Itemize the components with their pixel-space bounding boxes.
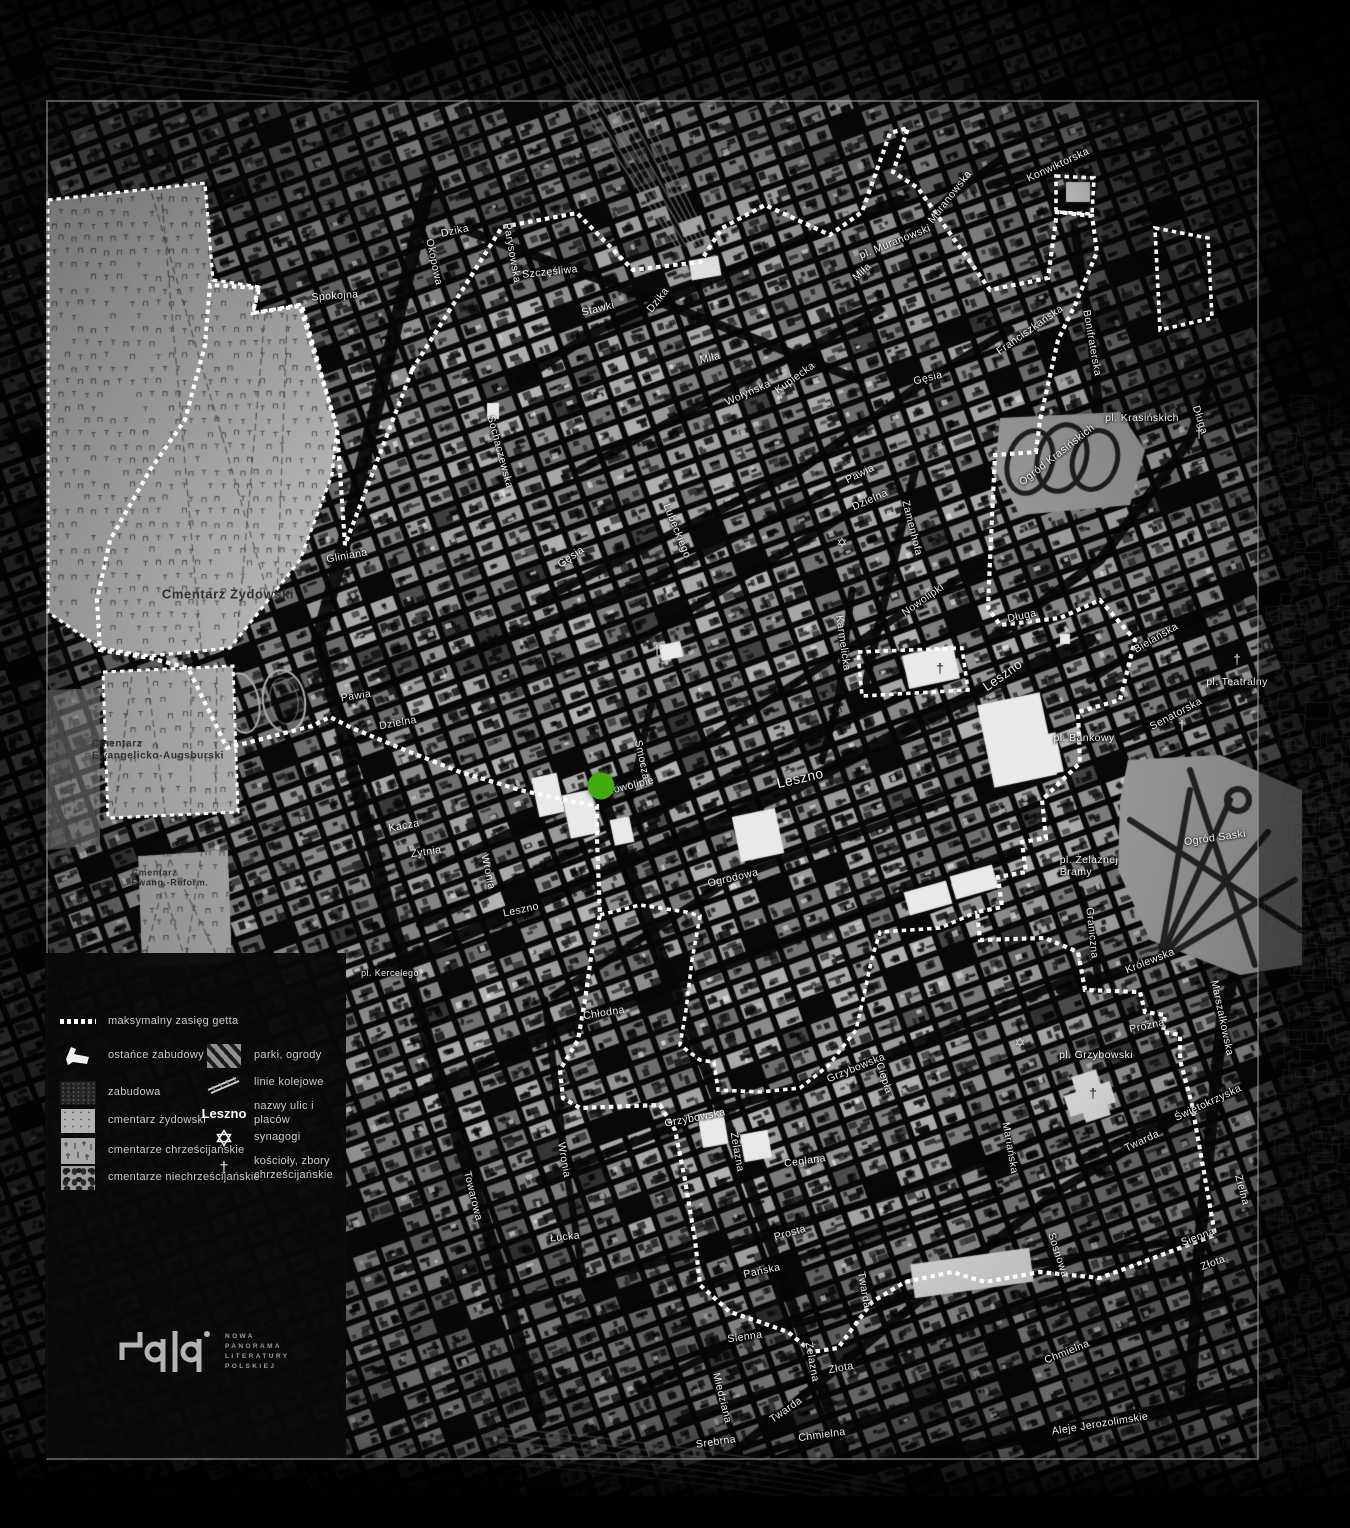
legend-item-parks: parki, ogrody: [205, 1044, 322, 1068]
legend-label: synagogi: [254, 1131, 300, 1145]
legend-panel: maksymalny zasięg gettaostańce zabudowyz…: [45, 953, 346, 1458]
logo-line: NOWA: [225, 1333, 289, 1341]
jewish-cemetery-icon: [59, 1109, 97, 1133]
synagogue-icon: [205, 1129, 243, 1147]
logo-line: LITERATURY: [225, 1353, 289, 1361]
publisher-logo-text: NOWA PANORAMA LITERATURY POLSKIEJ: [225, 1333, 289, 1372]
legend-item-building-remnants: ostańce zabudowy: [59, 1043, 204, 1069]
ghetto-boundary-icon: [59, 1019, 97, 1024]
legend-item-street-name-sample: Lesznonazwy ulic i placów: [205, 1100, 346, 1128]
legend-label: nazwy ulic i placów: [254, 1100, 346, 1128]
legend-item-synagogue: synagogi: [205, 1129, 300, 1147]
map-stage: DzikaOkopowaSpokojnaParysowskaSzczęśliwa…: [0, 0, 1350, 1528]
logo-line: PANORAMA: [225, 1343, 289, 1351]
logo-line: POLSKIEJ: [225, 1363, 289, 1371]
legend-label: kościoły, zbory chrześcijańskie: [254, 1155, 333, 1183]
legend-label: maksymalny zasięg getta: [108, 1015, 238, 1029]
street-name-sample-icon: Leszno: [205, 1106, 243, 1121]
built-up-icon: [59, 1081, 97, 1105]
legend-item-jewish-cemetery: cmentarz żydowski: [59, 1109, 206, 1133]
legend-item-church: †kościoły, zbory chrześcijańskie: [205, 1155, 333, 1183]
building-remnants-icon: [59, 1043, 97, 1069]
non-christian-cemeteries-icon: [59, 1166, 97, 1190]
legend-label: cmentarz żydowski: [108, 1114, 206, 1128]
christian-cemeteries-icon: [59, 1138, 97, 1164]
legend-label: linie kolejowe: [254, 1076, 324, 1090]
legend-label: zabudowa: [108, 1086, 161, 1100]
parks-icon: [205, 1044, 243, 1068]
nplp-logo-icon: [117, 1325, 213, 1379]
legend-item-built-up: zabudowa: [59, 1081, 161, 1105]
legend-item-railways: linie kolejowe: [205, 1072, 324, 1094]
publisher-logo: NOWA PANORAMA LITERATURY POLSKIEJ: [117, 1325, 289, 1379]
location-marker[interactable]: [588, 773, 615, 800]
legend-label: ostańce zabudowy: [108, 1049, 204, 1063]
legend-label: parki, ogrody: [254, 1049, 322, 1063]
church-icon: †: [205, 1161, 243, 1177]
legend-item-ghetto-boundary: maksymalny zasięg getta: [59, 1015, 238, 1029]
railways-icon: [205, 1072, 243, 1094]
